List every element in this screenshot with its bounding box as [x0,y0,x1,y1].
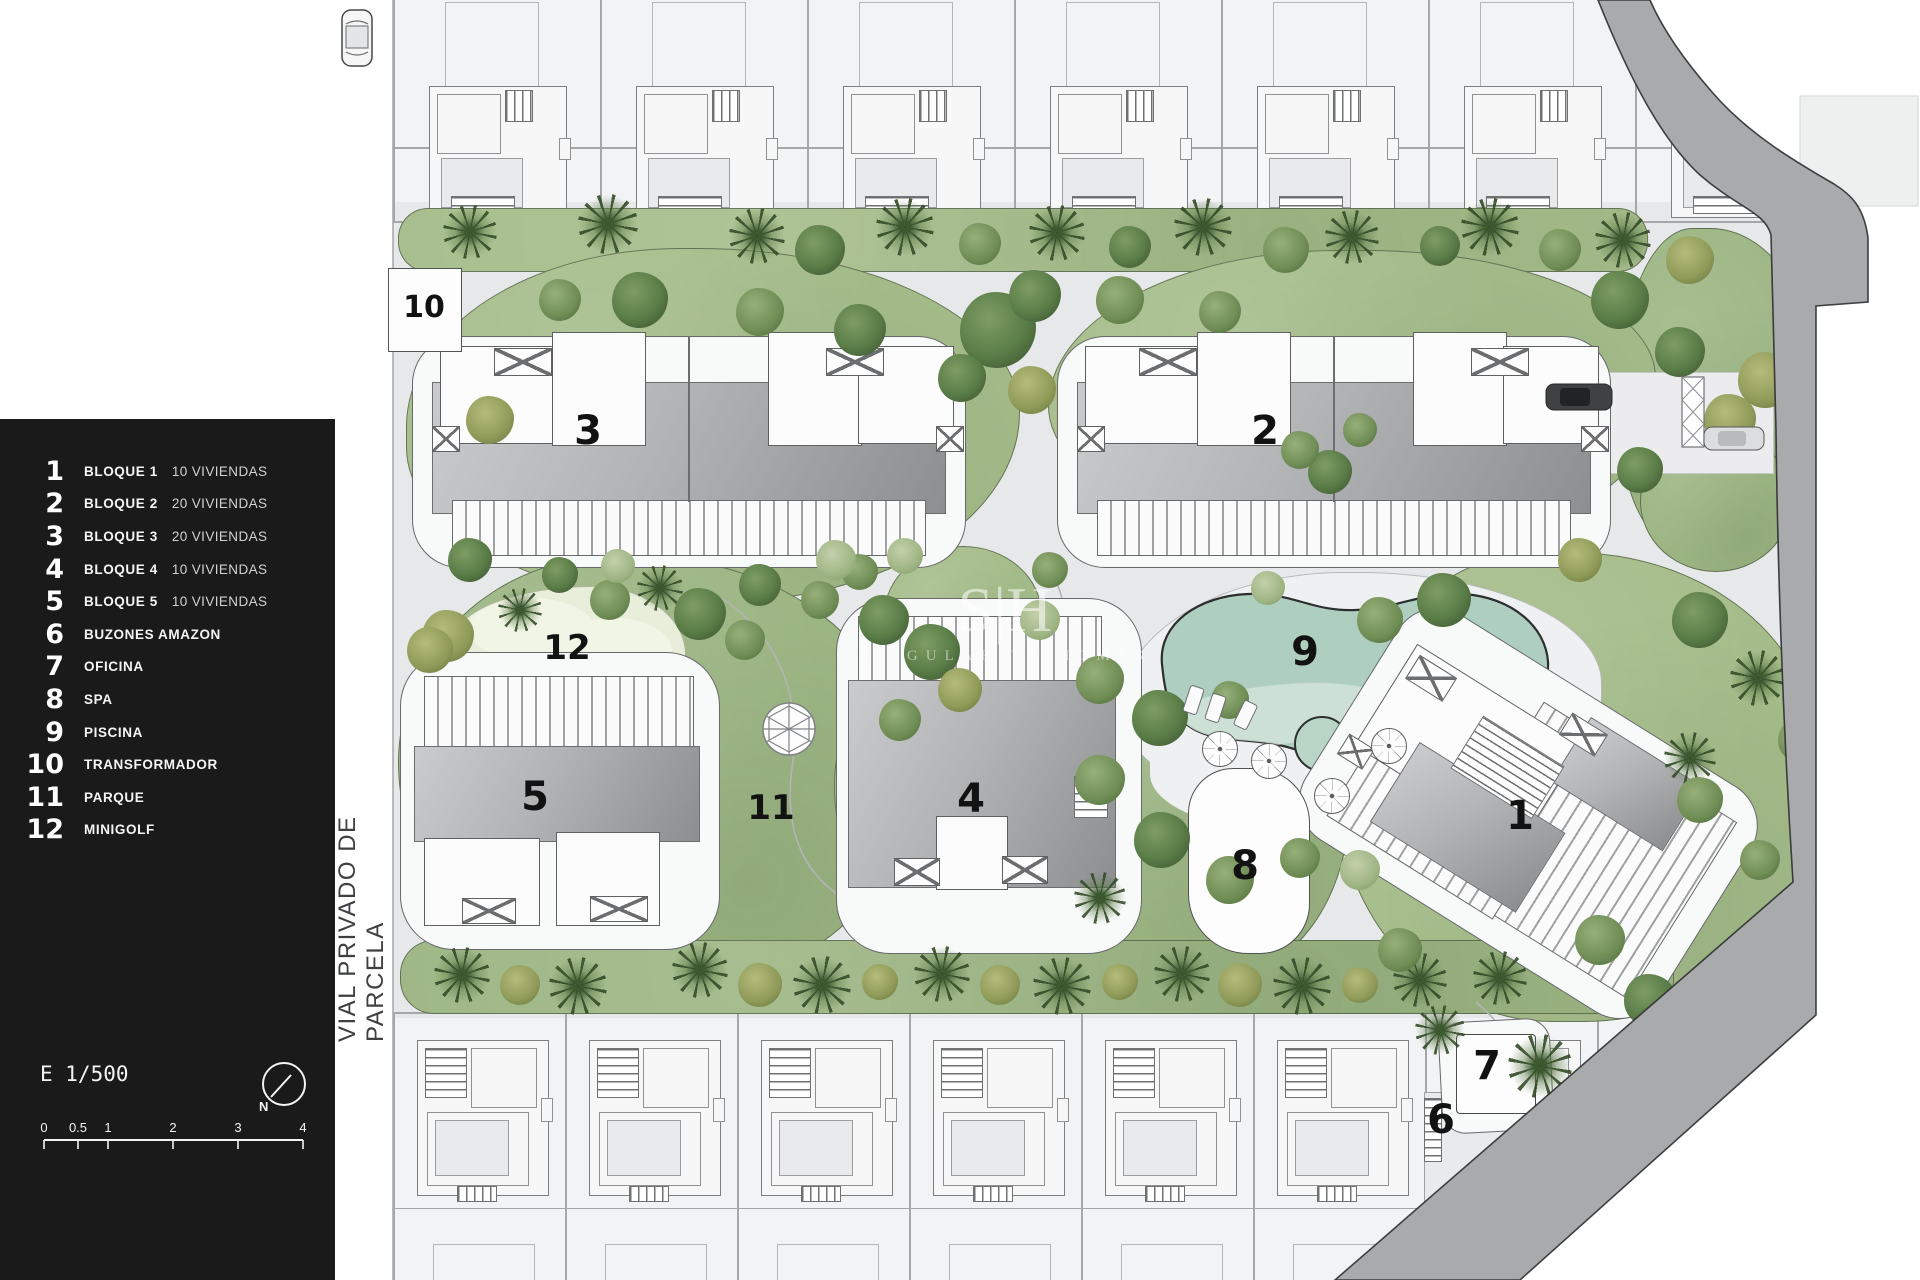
legend-item-number: 5 [26,586,64,617]
legend-item-number: 12 [26,814,64,845]
map-label-10: 10 [403,293,445,323]
map-label-9: 9 [1291,632,1319,672]
legend-item-12: 12MINIGOLF [26,814,327,847]
legend-item-2: 2BLOQUE 220 VIVIENDAS [26,488,327,521]
site-plan: 103212951148176 S|H SINGULARITY HOMES VI… [0,0,1920,1280]
legend-item-label: TRANSFORMADOR [84,757,218,772]
scale-tick-label: 0 [40,1120,47,1135]
legend-item-number: 1 [26,456,64,487]
legend-item-label: BLOQUE 4 [84,562,158,577]
scale-tick-label: 1 [104,1120,111,1135]
legend-item-number: 7 [26,651,64,682]
legend-list: 1BLOQUE 110 VIVIENDAS2BLOQUE 220 VIVIEND… [26,455,327,846]
legend-item-detail: 10 VIVIENDAS [172,594,268,609]
legend-item-4: 4BLOQUE 410 VIVIENDAS [26,553,327,586]
legend-item-label: PARQUE [84,790,144,805]
legend-item-6: 6BUZONES AMAZON [26,618,327,651]
legend-item-5: 5BLOQUE 510 VIVIENDAS [26,585,327,618]
legend-item-7: 7OFICINA [26,651,327,684]
legend-item-9: 9PISCINA [26,716,327,749]
map-label-8: 8 [1231,846,1259,886]
scale-text: E 1/500 [40,1062,129,1086]
legend-item-10: 10TRANSFORMADOR [26,748,327,781]
map-label-12: 12 [543,631,590,665]
map-label-3: 3 [574,411,602,451]
legend-footer: E 1/500 N 00.51234 [0,1039,335,1209]
legend-item-detail: 10 VIVIENDAS [172,464,268,479]
scale-tick-label: 4 [299,1120,306,1135]
legend-item-number: 4 [26,554,64,585]
legend-item-1: 1BLOQUE 110 VIVIENDAS [26,455,327,488]
legend-item-label: OFICINA [84,659,144,674]
map-label-11: 11 [747,791,794,825]
legend-item-label: BUZONES AMAZON [84,627,221,642]
map-label-5: 5 [521,777,549,817]
legend-item-label: BLOQUE 5 [84,594,158,609]
legend-panel: 1BLOQUE 110 VIVIENDAS2BLOQUE 220 VIVIEND… [0,419,335,1280]
legend-item-number: 10 [26,749,64,780]
legend-item-3: 3BLOQUE 320 VIVIENDAS [26,520,327,553]
scale-tick-label: 2 [169,1120,176,1135]
legend-item-number: 2 [26,488,64,519]
map-label-6: 6 [1427,1100,1455,1140]
legend-item-label: SPA [84,692,142,707]
legend-item-11: 11PARQUE [26,781,327,814]
scale-bar: 00.51234 [40,1120,306,1149]
map-label-7: 7 [1473,1046,1501,1086]
legend-item-label: BLOQUE 2 [84,496,158,511]
legend-item-label: MINIGOLF [84,822,155,837]
legend-item-number: 9 [26,717,64,748]
north-label: N [259,1099,268,1114]
scale-tick-label: 0.5 [69,1120,87,1135]
legend-item-label: BLOQUE 1 [84,464,158,479]
legend-item-8: 8SPA [26,683,327,716]
legend-item-label: BLOQUE 3 [84,529,158,544]
legend-item-number: 3 [26,521,64,552]
legend-item-number: 11 [26,782,64,813]
street-label: VIAL PRIVADO DE PARCELA [344,726,380,1042]
map-label-2: 2 [1251,411,1279,451]
north-indicator: N [259,1063,305,1114]
legend-item-number: 6 [26,619,64,650]
legend-item-label: PISCINA [84,725,143,740]
legend-item-detail: 20 VIVIENDAS [172,529,268,544]
legend-item-detail: 20 VIVIENDAS [172,496,268,511]
legend-item-number: 8 [26,684,64,715]
scale-tick-label: 3 [234,1120,241,1135]
map-label-4: 4 [957,779,985,819]
legend-item-detail: 10 VIVIENDAS [172,562,268,577]
map-label-1: 1 [1506,796,1534,836]
